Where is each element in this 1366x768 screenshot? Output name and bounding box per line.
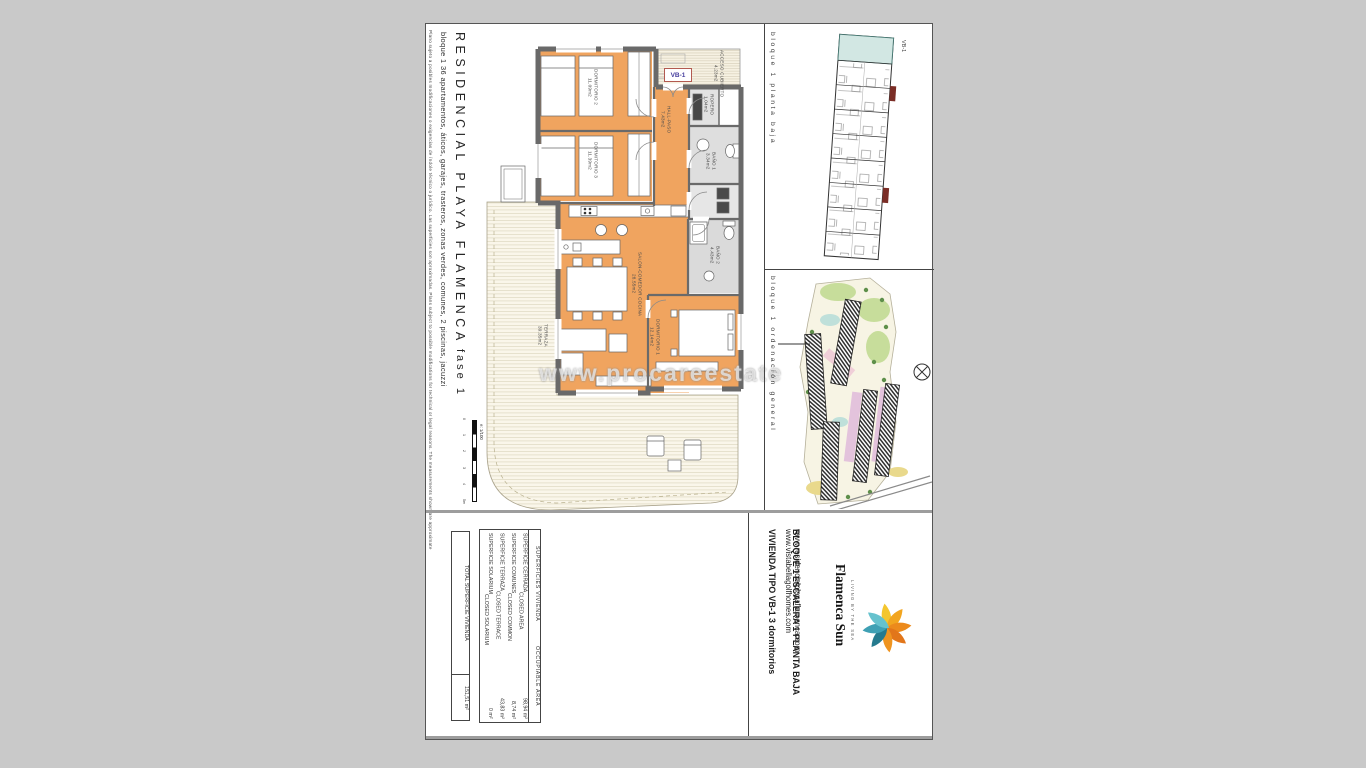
stair-core-2 [882,188,889,203]
stair-core-1 [889,86,896,101]
divider-titleblock [426,510,932,513]
scale-bar-graphic [472,420,477,502]
room-label-bano-2: BAÑO 24.43m2 [709,246,720,264]
project-phase: fase 1 [454,349,466,397]
surfaces-header: SUPERFICIES VIVIENDA OCCUPIABLE AREA [528,530,541,722]
surface-row-cerrada: SUPERFICIE CERRADA CLOSED AREA 98,94 m² [516,530,528,722]
website-urls: www.vistabellagolfhomes.com www.residenc… [784,529,802,655]
room-label-dormitorio-2: DORMITORIO 211.09m2 [587,69,598,105]
watermark-text: www.procareestate [539,360,764,387]
room-label-dormitorio-3: DORMITORIO 311.39m2 [587,142,598,178]
block-unit-tag: VB-1 [900,40,906,52]
highlighted-unit [838,34,894,64]
brand-name: Flamenca Sun [832,564,848,646]
project-subtitle: bloque 1 36 apartamentos, áticos, garaje… [439,32,448,387]
room-label-terraza: TERRAZA39.35m2 [537,324,548,347]
room-label-dormitorio-1: DORMITORIO 112.14m2 [649,319,660,355]
site-plan-drawing [778,272,932,509]
unit-type-line: VIVIENDA TIPO VB-1 3 dormitorios [753,529,777,695]
divider-vertical-main [764,24,765,510]
room-label-ropero: ROPERO1.04m2 [703,94,714,115]
scale-ticks: 0 1 2 3 4 5m [462,418,466,504]
surface-row-terraza: SUPERFICIE TERRAZA CLOSED TERRACE 43,83 … [493,530,505,722]
brand-tagline: LIVING BY THE SEA [850,580,855,642]
disclaimer-text: Plano sujeto a posibles modificaciones o… [428,30,433,736]
room-label-salon: SALON-COMEDOR COCINA28.55m2 [631,252,642,316]
divider-right-panels [764,269,934,270]
panel-planta-label: bloque 1 planta baja [769,32,776,145]
room-label-bano-1: BAÑO 13.34m2 [705,152,716,170]
surface-row-comunes: SUPERFICIE COMUNES CLOSED COMMON 8,74 m² [505,530,517,722]
unit-tag-vb1: VB-1 [664,68,692,82]
surface-row-solarium: SUPERFICIE SOLARIUM CLOSED SOLARIUM 0 m² [482,530,494,722]
panel-ordenacion-label: bloque 1 ordenación general [769,276,776,432]
floor-plan: ACCESO CUBIERTO4.23m2 DORMITORIO 211.09m… [481,24,764,511]
compass-icon [914,364,930,380]
total-surface-value: 151,51 m² [452,676,469,720]
building-block [824,34,899,260]
block-plan-drawing: VB-1 [778,26,932,266]
total-box-divider [452,674,469,675]
room-label-acceso: ACCESO CUBIERTO4.23m2 [713,50,724,97]
room-label-hall: HALL-PASO7.43m2 [660,106,671,133]
page-background: Plano sujeto a posibles modificaciones o… [0,0,1366,768]
flamenca-sun-logo [858,599,916,657]
plan-sheet: Plano sujeto a posibles modificaciones o… [425,23,933,740]
project-title: RESIDENCIAL PLAYA FLAMENCA fase 1 [451,32,469,397]
project-title-text: RESIDENCIAL PLAYA FLAMENCA [453,32,467,345]
website-residencial: www.residencialplayaflamenca.com [793,529,802,652]
website-vistabella: www.vistabellagolfhomes.com [784,529,793,652]
surfaces-table: SUPERFICIES VIVIENDA OCCUPIABLE AREA SUP… [479,529,541,723]
total-surface-box: TOTAL SUPERFICIE VIVIENDA 151,51 m² [451,531,470,721]
total-surface-label: TOTAL SUPERFICIE VIVIENDA [452,532,469,674]
divider-titleblock-vertical [748,513,749,736]
sheet-bottom-rule [426,736,932,739]
